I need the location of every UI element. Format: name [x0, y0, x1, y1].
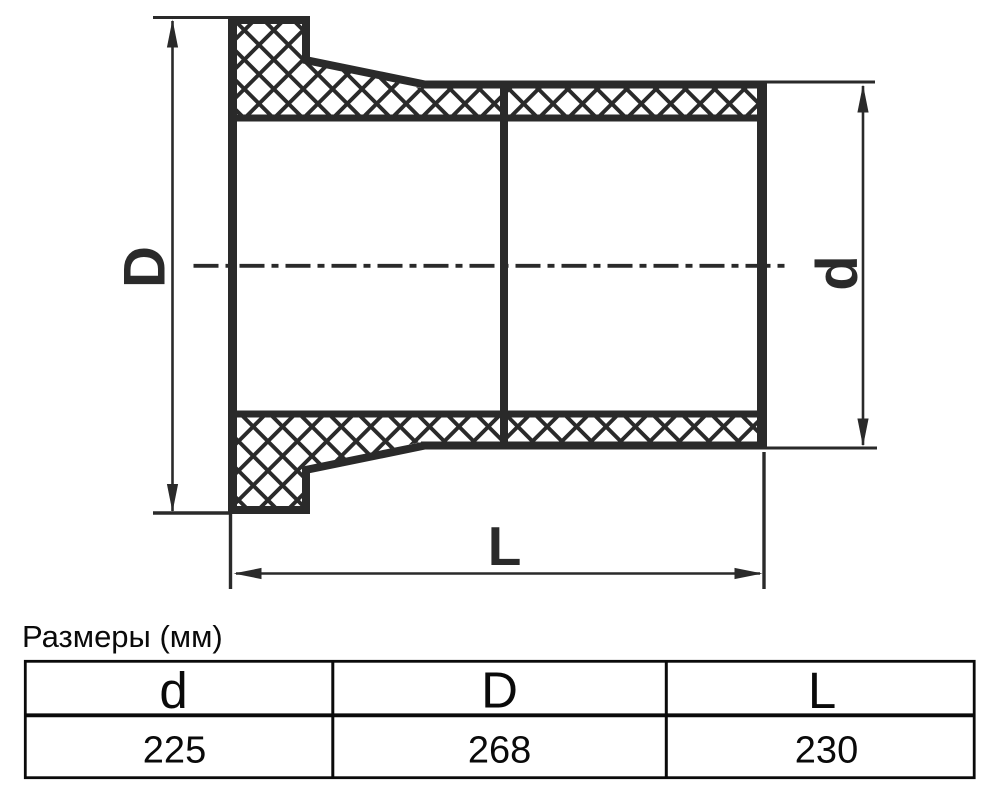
- svg-text:Размеры (мм): Размеры (мм): [22, 619, 223, 654]
- svg-text:d: d: [805, 255, 870, 290]
- svg-text:d: d: [159, 662, 187, 719]
- svg-text:230: 230: [795, 730, 858, 772]
- svg-text:225: 225: [143, 730, 206, 772]
- svg-text:L: L: [808, 662, 836, 719]
- svg-text:D: D: [481, 662, 518, 719]
- svg-text:268: 268: [468, 730, 531, 772]
- svg-text:L: L: [488, 515, 522, 577]
- svg-text:D: D: [113, 246, 178, 288]
